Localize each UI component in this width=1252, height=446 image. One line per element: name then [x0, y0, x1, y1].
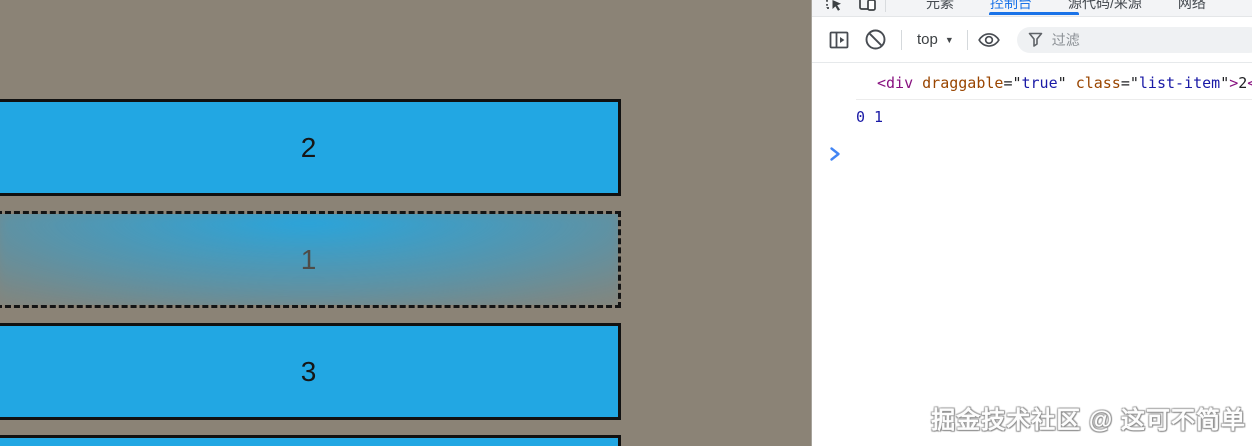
context-selector[interactable]: top ▼ — [917, 31, 954, 48]
watermark: 掘金技术社区 @ 这可不简单 — [931, 400, 1246, 435]
clear-console-icon[interactable] — [862, 27, 888, 53]
console-toolbar: top ▼ 过滤 — [812, 17, 1252, 63]
list-item-partial[interactable] — [0, 435, 621, 446]
list-item-label: 1 — [301, 244, 317, 276]
console-output: <div draggable="true" class="list-item">… — [812, 63, 1252, 166]
active-tab-underline — [989, 12, 1079, 15]
console-log-line: 0 1 — [812, 100, 1252, 132]
console-element-log[interactable]: <div draggable="true" class="list-item">… — [812, 63, 1252, 99]
console-sidebar-icon[interactable] — [826, 27, 852, 53]
list-item[interactable]: 2 — [0, 99, 621, 196]
divider — [967, 30, 968, 50]
draggable-list: 2 1 3 — [0, 99, 621, 446]
context-selector-value: top — [917, 31, 938, 48]
prompt-chevron-icon — [829, 146, 842, 162]
list-item[interactable]: 3 — [0, 323, 621, 420]
list-item-label: 2 — [301, 132, 317, 164]
devtools-tab-bar: 元素 控制台 源代码/来源 网络 — [812, 0, 1252, 17]
filter-funnel-icon — [1027, 31, 1044, 48]
list-item-dragging[interactable]: 1 — [0, 211, 621, 308]
divider — [901, 30, 902, 50]
filter-placeholder: 过滤 — [1052, 30, 1080, 50]
tab-elements[interactable]: 元素 — [908, 0, 972, 13]
divider — [885, 0, 886, 12]
tab-network[interactable]: 网络 — [1160, 0, 1224, 13]
demo-page: 2 1 3 — [0, 0, 811, 446]
eye-icon[interactable] — [976, 27, 1002, 53]
devtools-panel: 元素 控制台 源代码/来源 网络 top ▼ — [811, 0, 1252, 446]
console-filter-input[interactable]: 过滤 — [1017, 27, 1252, 53]
device-toolbar-icon[interactable] — [857, 0, 877, 13]
tab-console[interactable]: 控制台 — [972, 0, 1050, 13]
inspect-icon[interactable] — [824, 0, 844, 13]
console-prompt[interactable] — [812, 132, 1252, 166]
tab-sources[interactable]: 源代码/来源 — [1050, 0, 1160, 13]
chevron-down-icon: ▼ — [945, 35, 954, 45]
list-item-label: 3 — [301, 356, 317, 388]
